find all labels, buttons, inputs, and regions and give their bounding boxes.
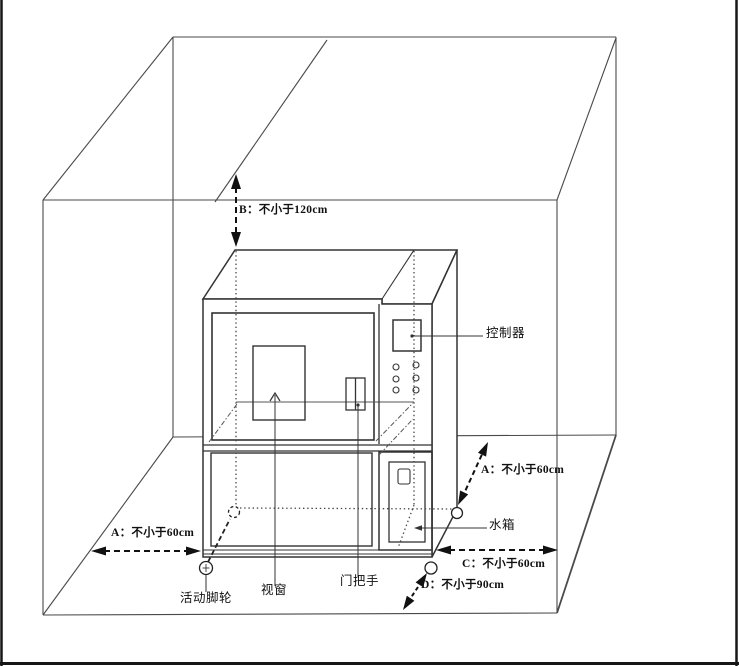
viewport-label: 视窗 xyxy=(261,584,287,597)
diagram-drawing xyxy=(0,0,739,666)
dimension-label-d: D：不小于90cm xyxy=(421,579,504,592)
controller-label: 控制器 xyxy=(486,327,525,340)
dimension-arrow-c xyxy=(436,546,558,555)
caster-back-right xyxy=(452,508,463,519)
dimension-arrow-a-left xyxy=(91,547,201,556)
caster-front-left xyxy=(200,562,213,575)
dimension-label-a-left: A：不小于60cm xyxy=(111,527,194,540)
machine-front-face xyxy=(203,299,432,557)
machine-body xyxy=(203,250,457,557)
caster-label: 活动脚轮 xyxy=(180,592,232,605)
caster-front-right xyxy=(425,562,437,574)
water-tank-label: 水箱 xyxy=(489,519,515,532)
dimension-label-a-right: A：不小于60cm xyxy=(481,464,564,477)
door-handle-label: 门把手 xyxy=(340,575,379,588)
dimension-label-b: B：不小于120cm xyxy=(239,204,328,217)
dimension-label-c: C：不小于60cm xyxy=(462,558,545,571)
ceiling-edge-above-machine xyxy=(215,40,327,202)
installation-clearance-diagram: B：不小于120cm A：不小于60cm A：不小于60cm C：不小于60cm… xyxy=(0,0,739,666)
caster-back-left-hidden xyxy=(229,507,240,518)
machine-top-face xyxy=(203,250,457,304)
